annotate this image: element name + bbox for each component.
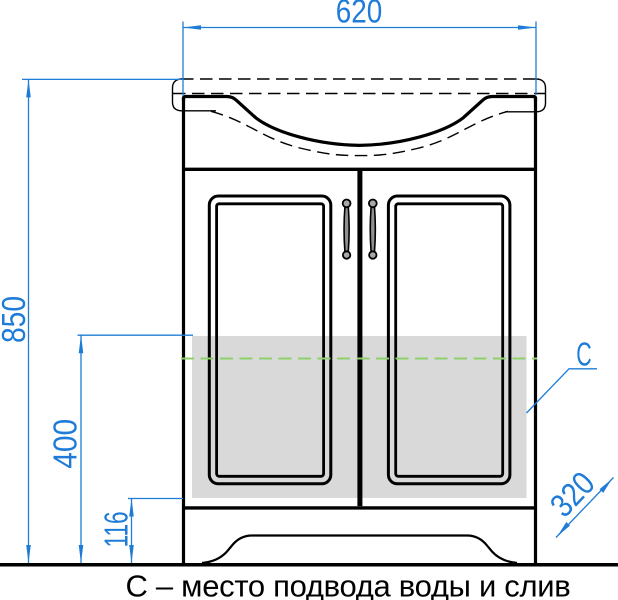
svg-text:620: 620 — [336, 0, 383, 30]
svg-text:850: 850 — [0, 296, 32, 343]
svg-text:400: 400 — [47, 419, 84, 469]
svg-text:C: C — [576, 335, 592, 372]
svg-text:С – место подвода воды и слив: С – место подвода воды и слив — [126, 569, 571, 600]
svg-text:116: 116 — [97, 511, 134, 547]
